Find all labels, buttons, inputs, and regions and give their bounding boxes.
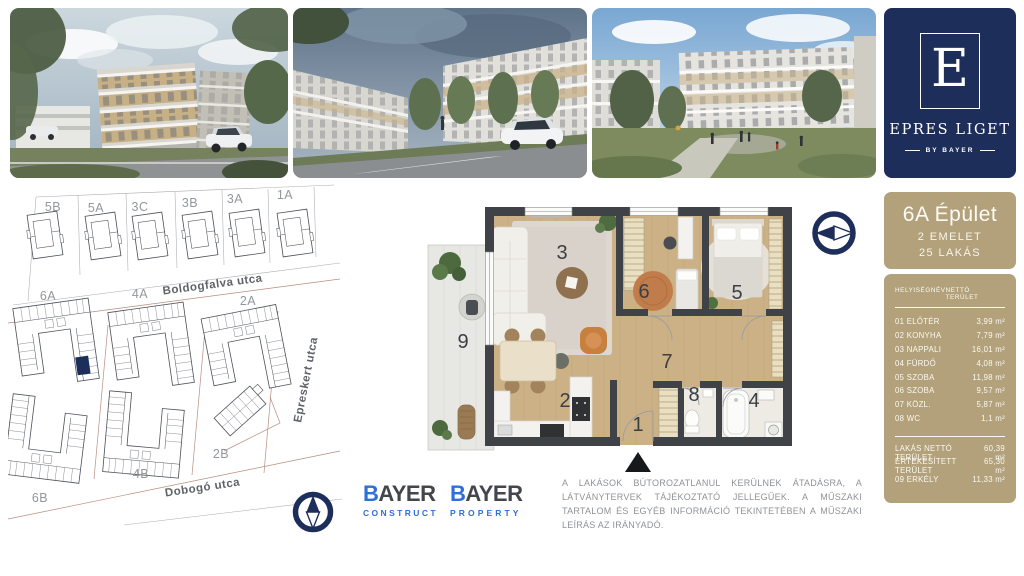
disclaimer-text: A LAKÁSOK BÚTOROZATLANUL KERÜLNEK ÁTADÁS… bbox=[562, 477, 862, 533]
building-label-3c: 3C bbox=[132, 200, 149, 214]
entry-arrow-icon bbox=[625, 452, 651, 472]
bayer-b: B bbox=[450, 481, 465, 506]
courtyard-render-illustration bbox=[592, 8, 876, 178]
floor-plan: 1 2 3 4 5 6 7 8 9 bbox=[420, 195, 812, 478]
exterior-render-photo bbox=[10, 8, 288, 178]
room-number-2: 2 bbox=[559, 390, 570, 412]
room-area: 4,08 m² bbox=[976, 359, 1005, 368]
building-label-5a: 5A bbox=[88, 201, 104, 215]
room-area: 11,98 m² bbox=[972, 373, 1005, 382]
brochure-page: E EPRES LIGET BY BAYER bbox=[0, 0, 1024, 576]
building-label-4b: 4B bbox=[133, 467, 149, 481]
summary-area: 11,33 m² bbox=[972, 475, 1005, 484]
courtyard-render-photo bbox=[592, 8, 876, 178]
brand-byline: BY BAYER bbox=[905, 147, 996, 154]
byline-dash bbox=[980, 150, 995, 151]
brand-monogram-box: E bbox=[920, 33, 980, 109]
room-area: 5,87 m² bbox=[976, 400, 1005, 409]
table-row: 01 ELŐTÉR 3,99 m² bbox=[895, 315, 1005, 329]
summary-row: ÉRTÉKESÍTETT TERÜLET 65,30 m² bbox=[895, 460, 1005, 473]
table-row: 07 KÖZL. 5,87 m² bbox=[895, 398, 1005, 412]
street-label-epreskert: Epreskert utca bbox=[292, 336, 320, 424]
table-row: 03 NAPPALI 16,01 m² bbox=[895, 343, 1005, 357]
bayer-property-wordmark: BAYER bbox=[450, 483, 523, 505]
room-number-3: 3 bbox=[556, 242, 567, 264]
bayer-construct-logo: BAYER CONSTRUCT bbox=[363, 483, 438, 518]
building-label-6a: 6A bbox=[40, 289, 56, 303]
building-label-6b: 6B bbox=[32, 491, 48, 505]
byline-text: BY BAYER bbox=[926, 147, 975, 154]
building-label-5b: 5B bbox=[45, 200, 61, 214]
room-number-7: 7 bbox=[661, 351, 672, 373]
room-number-4: 4 bbox=[748, 390, 759, 412]
table-row: 04 FÜRDŐ 4,08 m² bbox=[895, 356, 1005, 370]
compass-north-icon bbox=[296, 495, 331, 530]
building-2b-shape bbox=[214, 381, 271, 436]
table-row: 08 WC 1,1 m² bbox=[895, 412, 1005, 426]
bayer-construct-wordmark: BAYER bbox=[363, 483, 438, 505]
summary-name: ÉRTÉKESÍTETT TERÜLET bbox=[895, 457, 978, 475]
bayer-property-division: PROPERTY bbox=[450, 508, 523, 518]
unit-header-card: 6A Épület 2 EMELET 25 LAKÁS bbox=[884, 192, 1016, 269]
room-name: 04 FÜRDŐ bbox=[895, 359, 936, 368]
site-plan: 5B 5A 3C 3B 3A 1A 6A 4A 2A 6B 4B 2B Bold… bbox=[8, 183, 343, 568]
room-table-card: HELYISÉGNÉV NETTÓ TERÜLET 01 ELŐTÉR 3,99… bbox=[884, 274, 1016, 503]
unit-count: 25 LAKÁS bbox=[919, 247, 981, 259]
room-name: 05 SZOBA bbox=[895, 373, 935, 382]
column-room-name: HELYISÉGNÉV bbox=[895, 287, 946, 301]
brand-logo-card: E EPRES LIGET BY BAYER bbox=[884, 8, 1016, 178]
room-name: 03 NAPPALI bbox=[895, 345, 941, 354]
building-label-3b: 3B bbox=[182, 196, 198, 210]
room-area: 1,1 m² bbox=[981, 414, 1005, 423]
street-render-photo bbox=[293, 8, 587, 178]
unit-floor: 2 EMELET bbox=[918, 231, 982, 243]
room-number-9: 9 bbox=[457, 331, 468, 353]
table-row: 06 SZOBA 9,57 m² bbox=[895, 384, 1005, 398]
room-name: 01 ELŐTÉR bbox=[895, 317, 940, 326]
table-header: HELYISÉGNÉV NETTÓ TERÜLET bbox=[895, 287, 1005, 308]
company-logos: BAYER CONSTRUCT BAYER PROPERTY bbox=[363, 483, 522, 518]
summary-name: 09 ERKÉLY bbox=[895, 475, 939, 484]
room-area: 9,57 m² bbox=[976, 386, 1005, 395]
room-number-1: 1 bbox=[632, 414, 643, 436]
entry-wardrobe bbox=[659, 387, 678, 439]
building-label-1a: 1A bbox=[277, 188, 293, 202]
byline-dash bbox=[905, 150, 920, 151]
room-area: 16,01 m² bbox=[972, 345, 1005, 354]
building-label-2b: 2B bbox=[213, 447, 229, 461]
room-name: 02 KONYHA bbox=[895, 331, 941, 340]
brand-monogram: E bbox=[931, 43, 969, 95]
summary-area: 65,30 m² bbox=[978, 457, 1005, 475]
room-name: 06 SZOBA bbox=[895, 386, 935, 395]
room-area: 3,99 m² bbox=[976, 317, 1005, 326]
unit-title: 6A Épület bbox=[903, 203, 997, 227]
column-net-area: NETTÓ TERÜLET bbox=[946, 287, 1005, 301]
room-number-6: 6 bbox=[638, 281, 649, 303]
room-number-8: 8 bbox=[688, 384, 699, 406]
room-number-5: 5 bbox=[731, 282, 742, 304]
table-row: 05 SZOBA 11,98 m² bbox=[895, 370, 1005, 384]
bayer-rest: AYER bbox=[465, 481, 522, 506]
bayer-property-logo: BAYER PROPERTY bbox=[450, 483, 523, 518]
street-label-dobogo: Dobogó utca bbox=[164, 476, 241, 499]
building-label-4a: 4A bbox=[132, 287, 148, 301]
room-name: 08 WC bbox=[895, 414, 920, 423]
building-label-3a: 3A bbox=[227, 192, 243, 206]
exterior-render-illustration bbox=[10, 8, 288, 178]
room-name: 07 KÖZL. bbox=[895, 400, 931, 409]
room-area: 7,79 m² bbox=[976, 331, 1005, 340]
bayer-construct-division: CONSTRUCT bbox=[363, 508, 438, 518]
bayer-b: B bbox=[363, 481, 378, 506]
street-render-illustration bbox=[293, 8, 587, 178]
highlighted-unit bbox=[75, 356, 90, 376]
building-label-2a: 2A bbox=[240, 294, 256, 308]
table-summary: LAKÁS NETTÓ TERÜLET 60,39 m² ÉRTÉKESÍTET… bbox=[895, 436, 1005, 486]
table-row: 02 KONYHA 7,79 m² bbox=[895, 329, 1005, 343]
compass-west-icon bbox=[810, 209, 858, 257]
bayer-rest: AYER bbox=[378, 481, 435, 506]
brand-name: EPRES LIGET bbox=[889, 122, 1010, 138]
